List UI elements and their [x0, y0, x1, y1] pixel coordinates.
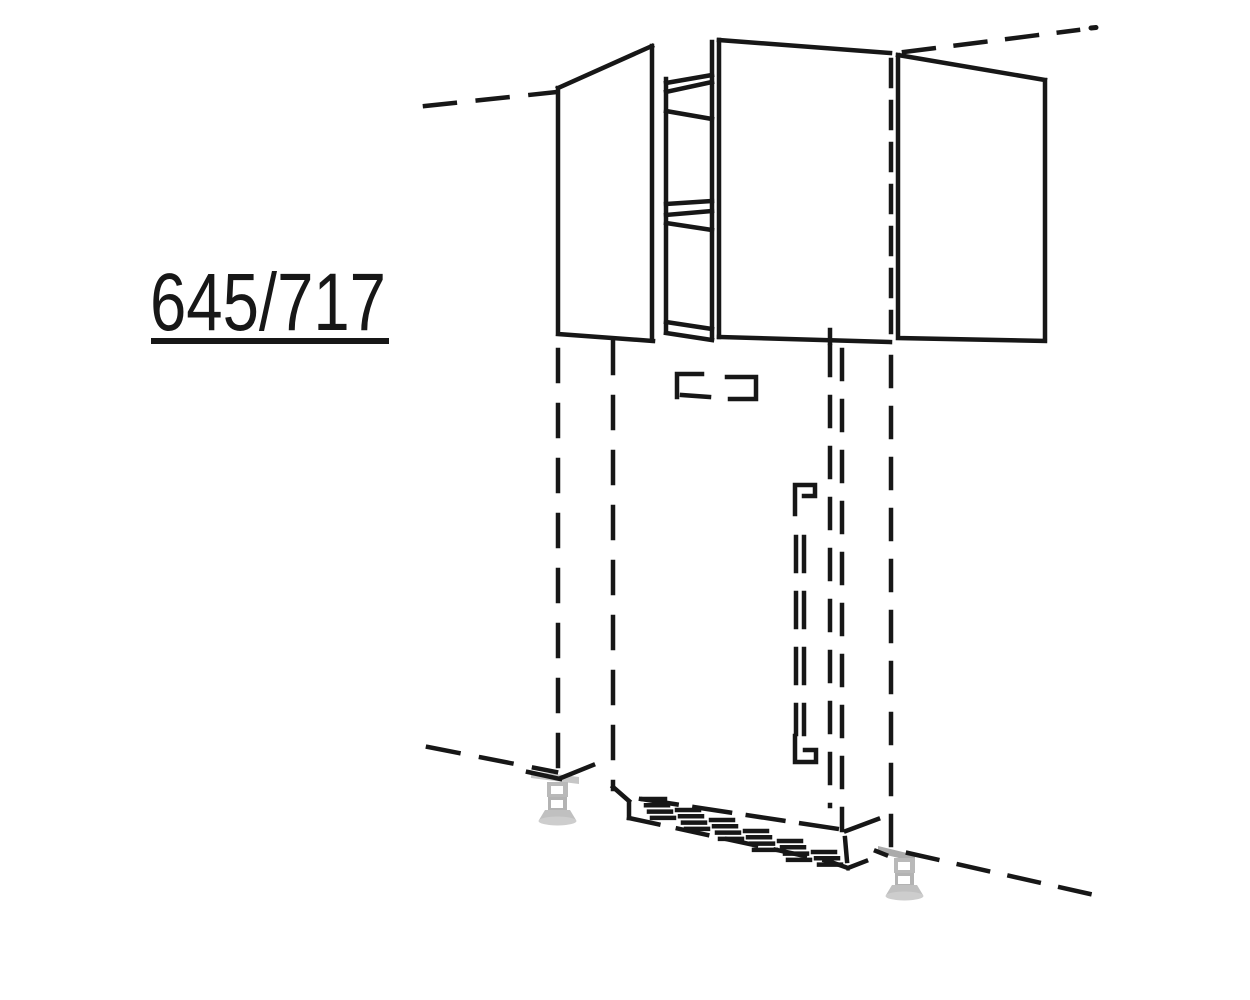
right-door: [898, 55, 1045, 341]
hatch-top-edge: [641, 799, 845, 830]
adjacent-unit-dash-bottom-left: [428, 747, 556, 772]
foot-lower-hole: [551, 800, 563, 808]
niche-right-corner: [845, 819, 878, 861]
handle-top-mount: [795, 485, 815, 514]
foot-base-rim: [539, 817, 577, 826]
foot-upper-hole: [551, 786, 563, 794]
hatch-fill-dashes: [643, 799, 841, 865]
left-door: [558, 46, 653, 341]
adjacent-unit-dash-top-left: [425, 92, 557, 106]
door-handle-dashed: [795, 485, 816, 762]
bracket-left-base: [682, 395, 709, 397]
niche-left-elbow: [613, 787, 629, 818]
foot-upper-hole: [898, 862, 910, 870]
bracket-right: [727, 377, 756, 399]
foot-lower-hole: [898, 876, 910, 884]
niche-dashed-outline: [558, 342, 891, 861]
adjacent-unit-dash-top-right: [904, 28, 1096, 53]
handle-bottom-mount: [795, 736, 816, 762]
linework: [425, 28, 1096, 895]
foot-base-rim: [886, 892, 924, 901]
type-code: 645/717: [150, 257, 389, 348]
ventilation-hatch-band: [629, 799, 866, 868]
cabinet-diagram: 645/717: [0, 0, 1250, 1000]
interior-shelf-edges: [666, 75, 712, 340]
type-code-label: 645/717: [150, 257, 386, 348]
mounting-brackets: [677, 374, 756, 399]
wall-cabinet: [558, 40, 1045, 343]
catalog-diagram-page: 645/717: [0, 0, 1250, 1000]
center-door: [719, 40, 890, 342]
